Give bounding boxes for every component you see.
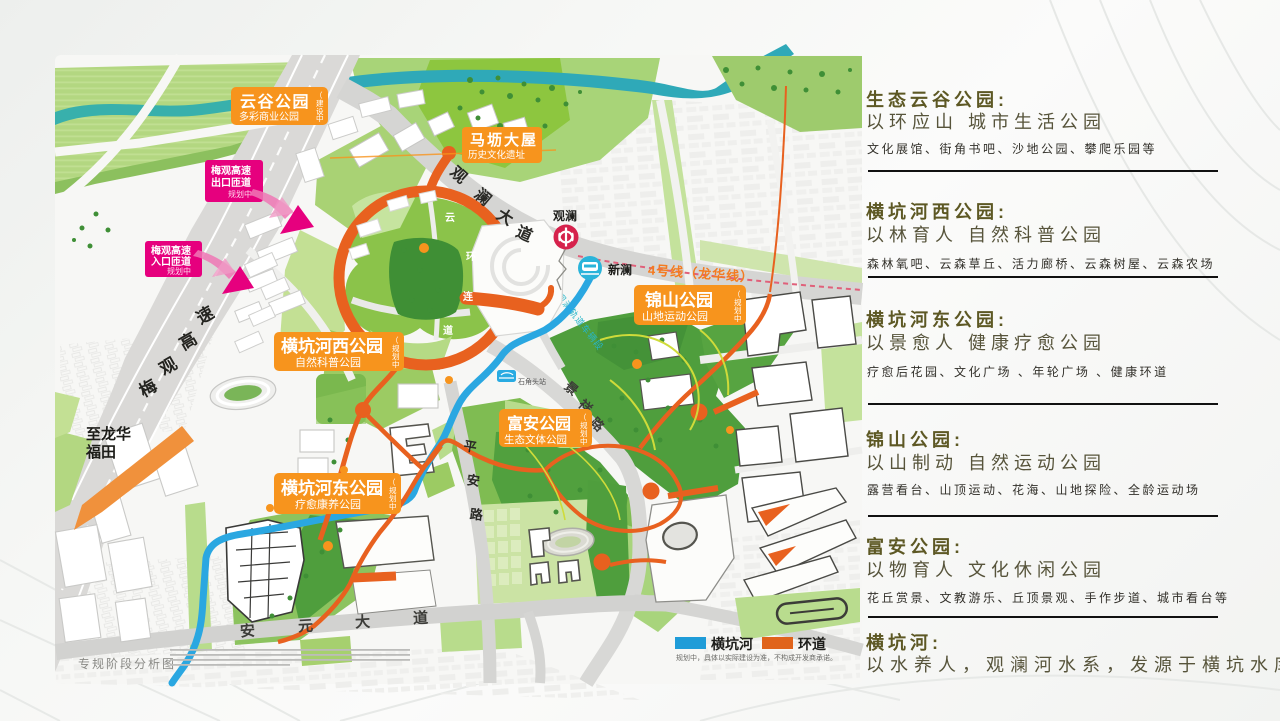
svg-text:中: 中 [392, 359, 400, 369]
svg-text:横坑河东公园: 横坑河东公园 [281, 478, 383, 498]
svg-text:马坜大屋: 马坜大屋 [470, 131, 538, 149]
svg-text:至龙华: 至龙华 [86, 425, 131, 443]
svg-text:出口匝道: 出口匝道 [211, 176, 251, 189]
svg-text:云: 云 [445, 212, 455, 224]
svg-text:石角头站: 石角头站 [518, 377, 546, 386]
svg-text:梅观高速: 梅观高速 [211, 164, 251, 177]
svg-text:历史文化遗址: 历史文化遗址 [468, 149, 526, 161]
svg-text:富安公园: 富安公园 [507, 414, 571, 433]
svg-text:规划中，具体以实际建设为准，不构成开发商承诺。: 规划中，具体以实际建设为准，不构成开发商承诺。 [676, 653, 837, 662]
svg-text:专规阶段分析图: 专规阶段分析图 [78, 656, 176, 671]
svg-text:规划中: 规划中 [228, 189, 252, 199]
svg-text:新澜: 新澜 [608, 262, 632, 277]
svg-text:平: 平 [463, 438, 478, 455]
svg-text:安: 安 [466, 472, 481, 489]
svg-text:路: 路 [469, 506, 484, 522]
svg-text:疗愈康养公园: 疗愈康养公园 [295, 497, 361, 511]
svg-text:生态文体公园: 生态文体公园 [504, 433, 567, 446]
svg-text:福田: 福田 [85, 443, 116, 461]
svg-text:连: 连 [463, 290, 474, 303]
svg-text:道: 道 [443, 324, 453, 337]
svg-text:中: 中 [580, 436, 588, 446]
svg-text:梅观高速: 梅观高速 [151, 244, 191, 257]
svg-text:中: 中 [389, 501, 397, 511]
svg-text:中: 中 [316, 113, 324, 123]
svg-text:多彩商业公园: 多彩商业公园 [239, 110, 299, 123]
svg-text:规划中: 规划中 [167, 266, 191, 276]
svg-text:环: 环 [466, 251, 476, 263]
svg-text:环道: 环道 [798, 636, 826, 652]
svg-text:观澜: 观澜 [553, 209, 577, 223]
svg-text:元: 元 [298, 618, 314, 636]
svg-text:大: 大 [355, 613, 371, 632]
svg-text:横坑河: 横坑河 [711, 636, 753, 652]
svg-text:云谷公园: 云谷公园 [240, 93, 310, 111]
svg-text:道: 道 [413, 609, 429, 628]
svg-text:横坑河西公园: 横坑河西公园 [281, 336, 383, 356]
svg-text:安: 安 [239, 621, 255, 640]
svg-text:山地运动公园: 山地运动公园 [642, 310, 708, 323]
svg-text:中: 中 [734, 313, 742, 323]
svg-text:自然科普公园: 自然科普公园 [295, 355, 361, 369]
svg-text:锦山公园: 锦山公园 [645, 290, 713, 310]
